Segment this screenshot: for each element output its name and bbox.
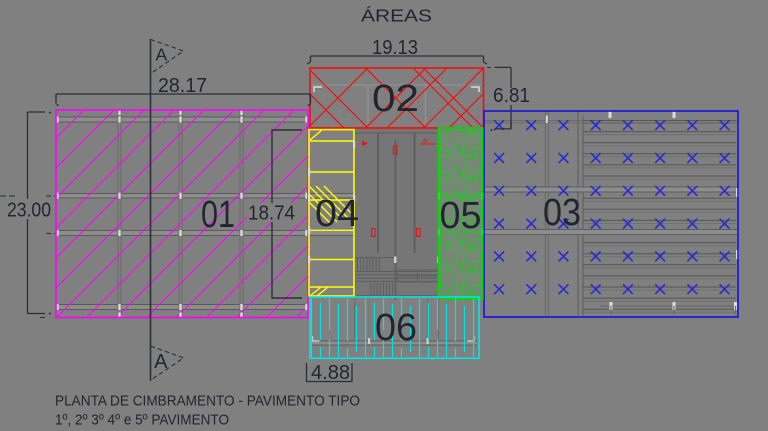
svg-text:28.17: 28.17	[158, 75, 207, 97]
svg-text:4.88: 4.88	[311, 362, 350, 384]
svg-text:A: A	[154, 351, 168, 373]
svg-text:06: 06	[375, 307, 417, 349]
svg-text:a: a	[423, 136, 428, 145]
svg-text:02: 02	[372, 78, 419, 120]
svg-text:03: 03	[543, 192, 581, 234]
svg-text:6.81: 6.81	[493, 85, 530, 107]
svg-text:1º, 2º 3º 4º e 5º PAVIMENTO: 1º, 2º 3º 4º e 5º PAVIMENTO	[55, 413, 229, 429]
svg-text:18.74: 18.74	[248, 203, 295, 225]
svg-text:23.00: 23.00	[7, 200, 51, 222]
svg-text:PLANTA DE CIMBRAMENTO - PAVIME: PLANTA DE CIMBRAMENTO - PAVIMENTO TIPO	[55, 394, 360, 410]
svg-text:19.13: 19.13	[372, 37, 418, 59]
svg-text:05: 05	[440, 195, 482, 237]
svg-text:04: 04	[315, 193, 359, 235]
svg-text:01: 01	[201, 194, 235, 236]
svg-text:A: A	[155, 45, 167, 65]
svg-text:ÁREAS: ÁREAS	[361, 6, 432, 26]
